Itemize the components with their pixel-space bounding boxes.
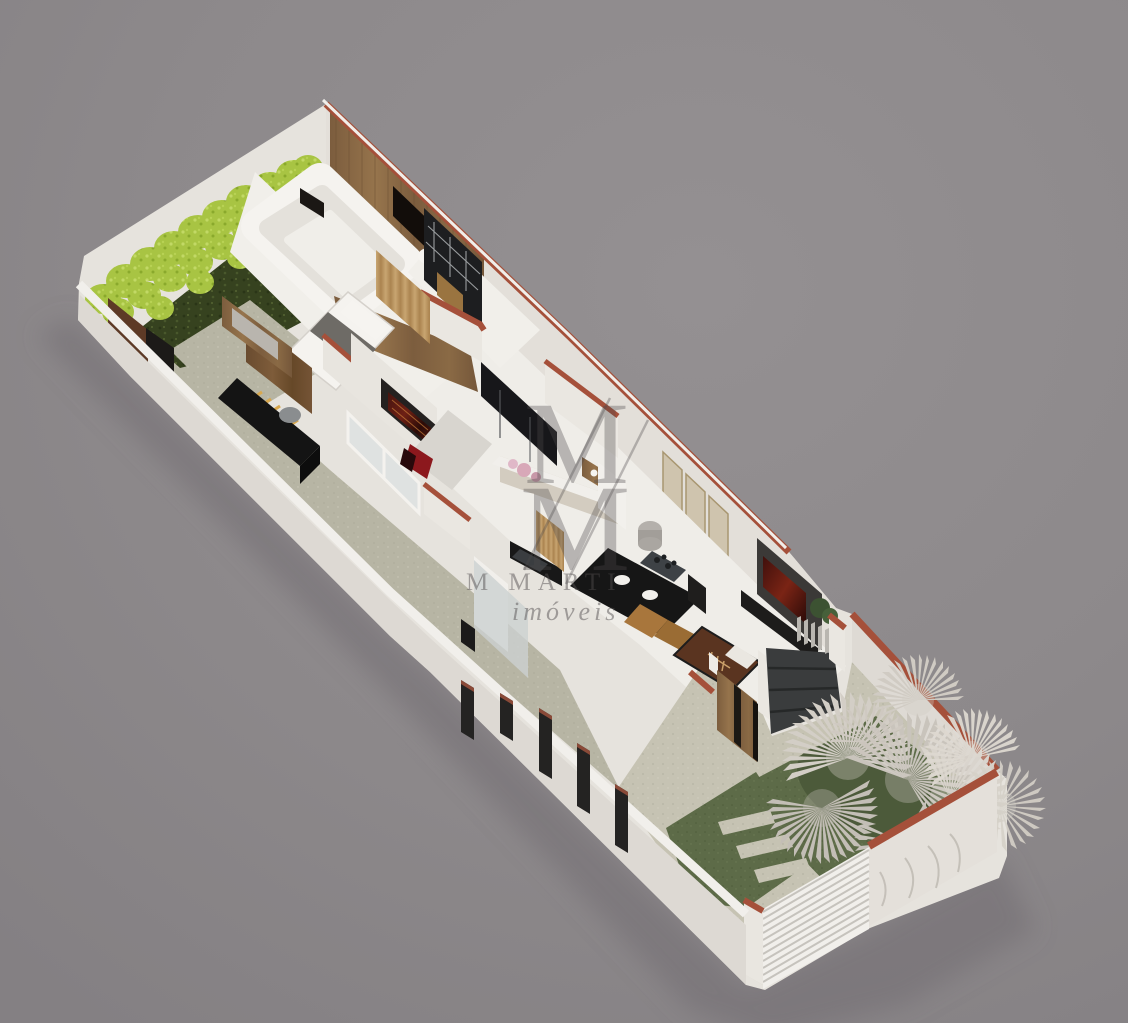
svg-text:M MARTI: M MARTI	[466, 569, 623, 596]
svg-text:imóveis: imóveis	[512, 597, 619, 626]
